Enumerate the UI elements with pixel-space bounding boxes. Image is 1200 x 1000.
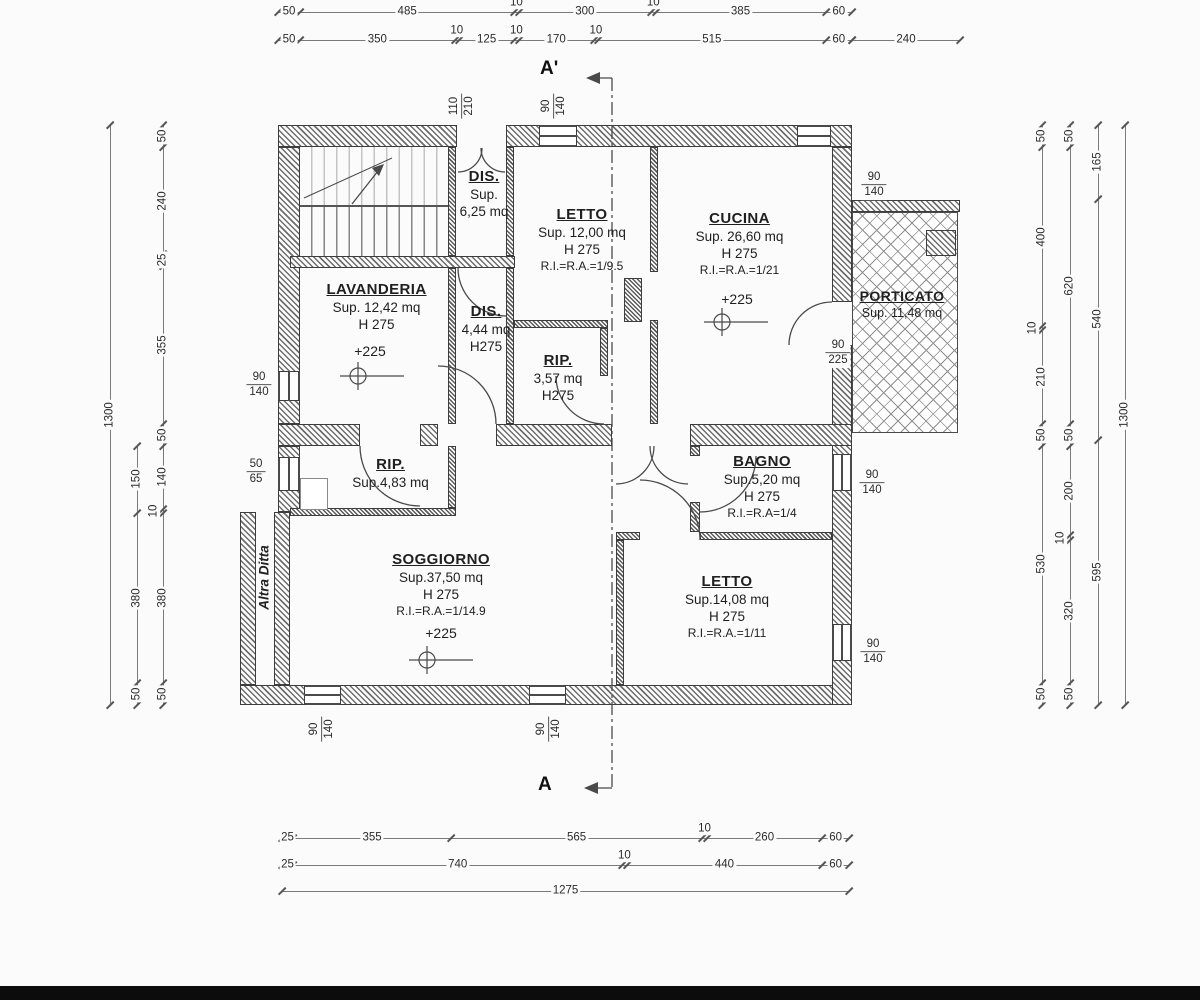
wall-segment — [830, 125, 852, 147]
room-info: H 275 — [506, 242, 658, 257]
room-name: RIP. — [308, 456, 473, 473]
dimension-tick — [848, 8, 856, 16]
dimension-label: 25 — [279, 859, 296, 871]
dimension-label: 50 — [1064, 685, 1076, 702]
room-name: LETTO — [506, 206, 658, 223]
wall-segment — [278, 424, 360, 446]
opening-dimension: 90140 — [246, 370, 271, 400]
wall-segment — [496, 424, 612, 446]
room-label-rip-ovest: RIP. Sup.4,83 mq — [308, 456, 473, 490]
dimension-label: 440 — [713, 859, 736, 871]
dimension-label: 740 — [446, 859, 469, 871]
dimension-label: 565 — [565, 832, 588, 844]
wall-segment — [420, 424, 438, 446]
dimension-label: 10 — [1055, 529, 1067, 546]
room-label-cucina: CUCINA Sup. 26,60 mq H 275 R.I.=R.A.=1/2… — [652, 210, 827, 277]
dimension-label: 165 — [1092, 150, 1104, 173]
porticato-pillar — [926, 230, 956, 256]
level-marker-label: +225 — [721, 291, 753, 307]
dimension-label: 380 — [131, 586, 143, 609]
dimension-label: 400 — [1036, 225, 1048, 248]
dimension-label: 50 — [131, 685, 143, 702]
room-label-rip-centro: RIP. 3,57 mq H275 — [503, 352, 613, 403]
room-info: Sup.5,20 mq — [682, 472, 842, 487]
room-name: LAVANDERIA — [294, 281, 459, 298]
dimension-label: 10 — [148, 503, 160, 520]
dimension-tick — [1094, 701, 1102, 709]
window — [540, 125, 576, 147]
dimension-label: 320 — [1064, 600, 1076, 623]
dimension-label: 50 — [281, 6, 298, 18]
room-info: Sup.4,83 mq — [308, 475, 473, 490]
dimension-label: 170 — [545, 34, 568, 46]
dimension-label: 200 — [1064, 479, 1076, 502]
room-info: Sup.37,50 mq — [356, 570, 526, 585]
room-info: R.I.=R.A=1/4 — [682, 506, 842, 520]
level-marker-label: +225 — [425, 625, 457, 641]
wall-segment — [278, 125, 457, 147]
dimension-label: 240 — [894, 34, 917, 46]
room-info: Sup. 26,60 mq — [652, 229, 827, 244]
dimension-label: 595 — [1092, 561, 1104, 584]
room-label-lavanderia: LAVANDERIA Sup. 12,42 mq H 275 — [294, 281, 459, 332]
window — [530, 685, 565, 705]
room-info: H 275 — [294, 317, 459, 332]
dimension-label: 25 — [157, 252, 169, 269]
opening-dimension: 110210 — [447, 93, 477, 118]
dimension-label: 50 — [1064, 128, 1076, 145]
dimension-label: 355 — [360, 832, 383, 844]
dimension-label: 50 — [1036, 685, 1048, 702]
dimension-label: 50 — [1064, 427, 1076, 444]
dimension-label: 50 — [157, 128, 169, 145]
room-label-soggiorno: SOGGIORNO Sup.37,50 mq H 275 R.I.=R.A.=1… — [356, 551, 526, 618]
section-arrowhead — [584, 782, 598, 794]
dimension-label: 50 — [157, 685, 169, 702]
room-name: SOGGIORNO — [356, 551, 526, 568]
wall-segment — [278, 400, 300, 424]
dimension-tick — [845, 861, 853, 869]
room-info: 4,44 mq — [450, 322, 522, 337]
dimension-tick — [845, 887, 853, 895]
wall-segment — [832, 660, 852, 705]
wall-segment — [240, 685, 305, 705]
room-name: PORTICATO — [843, 288, 961, 304]
dimension-label: 60 — [827, 832, 844, 844]
level-marker-icon — [419, 652, 435, 668]
dimension-label: 50 — [157, 427, 169, 444]
room-name: LETTO — [642, 573, 812, 590]
opening-dimension: 90140 — [534, 716, 564, 741]
room-info: R.I.=R.A.=1/9.5 — [506, 259, 658, 273]
dimension-label: 10 — [508, 25, 525, 37]
dimension-label: 10 — [1027, 320, 1039, 337]
stair-flight-lower — [300, 205, 448, 256]
room-info: R.I.=R.A.=1/14.9 — [356, 604, 526, 618]
wall-segment — [565, 685, 852, 705]
section-marker-bottom: A — [538, 774, 552, 796]
door-arc — [438, 366, 496, 424]
dimension-label: 530 — [1036, 553, 1048, 576]
room-name: BAGNO — [682, 453, 842, 470]
room-info: R.I.=R.A.=1/21 — [652, 263, 827, 277]
partition-wall — [650, 320, 658, 424]
door-arc — [616, 446, 654, 484]
party-wall-segment — [240, 512, 256, 685]
opening-dimension: 90140 — [861, 170, 886, 200]
opening-dimension: 90225 — [825, 338, 850, 368]
dimension-label: 540 — [1092, 307, 1104, 330]
wall-segment — [832, 147, 852, 302]
opening-dimension: 90140 — [860, 637, 885, 667]
wall-segment — [290, 256, 515, 268]
wall-segment — [506, 125, 540, 147]
dimension-label: 210 — [1036, 365, 1048, 388]
dimension-label: 10 — [645, 0, 662, 9]
floor-plan-canvas: DIS. Sup. 6,25 mq LETTO Sup. 12,00 mq H … — [0, 0, 1200, 1000]
room-info: H 275 — [642, 609, 812, 624]
window — [832, 625, 852, 660]
wall-segment — [690, 424, 852, 446]
room-info: H 275 — [652, 246, 827, 261]
dimension-tick — [1121, 701, 1129, 709]
room-info: H275 — [503, 388, 613, 403]
dimension-label: 50 — [1036, 427, 1048, 444]
partition-wall — [616, 532, 640, 540]
room-info: Sup.14,08 mq — [642, 592, 812, 607]
dimension-label: 50 — [281, 34, 298, 46]
dimension-label: 620 — [1064, 274, 1076, 297]
dimension-label: 300 — [573, 6, 596, 18]
level-marker-icon — [714, 314, 730, 330]
room-name: CUCINA — [652, 210, 827, 227]
flue-block — [624, 278, 642, 322]
room-info: 3,57 mq — [503, 371, 613, 386]
dimension-label: 260 — [753, 832, 776, 844]
partition-wall — [616, 540, 624, 685]
window — [278, 458, 300, 490]
dimension-label: 10 — [588, 25, 605, 37]
dimension-label: 10 — [508, 0, 525, 9]
room-info: H 275 — [682, 489, 842, 504]
dimension-label: 515 — [700, 34, 723, 46]
dimension-label: 1300 — [1119, 400, 1131, 430]
room-label-letto-sud: LETTO Sup.14,08 mq H 275 R.I.=R.A.=1/11 — [642, 573, 812, 640]
room-label-bagno: BAGNO Sup.5,20 mq H 275 R.I.=R.A=1/4 — [682, 453, 842, 520]
room-info: Sup. 11,48 mq — [843, 306, 961, 320]
dimension-label: 125 — [475, 34, 498, 46]
dimension-label: 60 — [827, 859, 844, 871]
room-info: Sup. — [438, 187, 530, 202]
dimension-label: 60 — [830, 34, 847, 46]
room-name: DIS. — [450, 303, 522, 320]
dimension-label: 10 — [616, 850, 633, 862]
dimension-label: 380 — [157, 586, 169, 609]
dimension-label: 240 — [157, 189, 169, 212]
party-wall-label: Altra Ditta — [257, 518, 272, 638]
wall-segment — [576, 125, 798, 147]
party-wall-segment — [274, 512, 290, 685]
plan-linework-overlay — [0, 0, 1200, 1000]
porticato-top-wall — [852, 200, 960, 212]
staircase — [300, 147, 448, 256]
window — [798, 125, 830, 147]
partition-wall — [700, 532, 832, 540]
wall-segment — [340, 685, 530, 705]
room-info: Sup. 12,42 mq — [294, 300, 459, 315]
opening-dimension: 90140 — [859, 468, 884, 498]
dimension-label: 10 — [448, 25, 465, 37]
dimension-label: 10 — [696, 823, 713, 835]
dimension-label: 140 — [157, 466, 169, 489]
room-label-dis-centro: DIS. 4,44 mq H275 — [450, 303, 522, 354]
room-info: R.I.=R.A.=1/11 — [642, 626, 812, 640]
opening-dimension: 90140 — [539, 93, 569, 118]
dimension-label: 1275 — [551, 885, 581, 897]
dimension-label: 350 — [366, 34, 389, 46]
room-label-letto-nord: LETTO Sup. 12,00 mq H 275 R.I.=R.A.=1/9.… — [506, 206, 658, 273]
window — [305, 685, 340, 705]
dimension-label: 60 — [830, 6, 847, 18]
opening-dimension: 5065 — [247, 457, 266, 487]
room-name: DIS. — [438, 168, 530, 185]
dimension-label: 485 — [396, 6, 419, 18]
room-name: RIP. — [503, 352, 613, 369]
opening-dimension: 90140 — [307, 716, 337, 741]
room-info: Sup. 12,00 mq — [506, 225, 658, 240]
stair-flight-upper — [300, 147, 448, 205]
dimension-label: 50 — [1036, 128, 1048, 145]
dimension-label: 1300 — [104, 400, 116, 430]
room-label-porticato: PORTICATO Sup. 11,48 mq — [843, 288, 961, 320]
partition-wall — [514, 320, 608, 328]
dimension-tick — [845, 834, 853, 842]
level-marker-label: +225 — [354, 343, 386, 359]
section-marker-top: A' — [540, 58, 558, 80]
window — [278, 372, 300, 400]
dimension-label: 150 — [131, 468, 143, 491]
section-arrowhead — [586, 72, 600, 84]
dimension-tick — [106, 701, 114, 709]
dimension-label: 355 — [157, 333, 169, 356]
room-info: H 275 — [356, 587, 526, 602]
scan-edge-bar — [0, 986, 1200, 1000]
dimension-label: 25 — [279, 832, 296, 844]
level-marker-icon — [350, 368, 366, 384]
dimension-tick — [956, 36, 964, 44]
dimension-label: 385 — [729, 6, 752, 18]
